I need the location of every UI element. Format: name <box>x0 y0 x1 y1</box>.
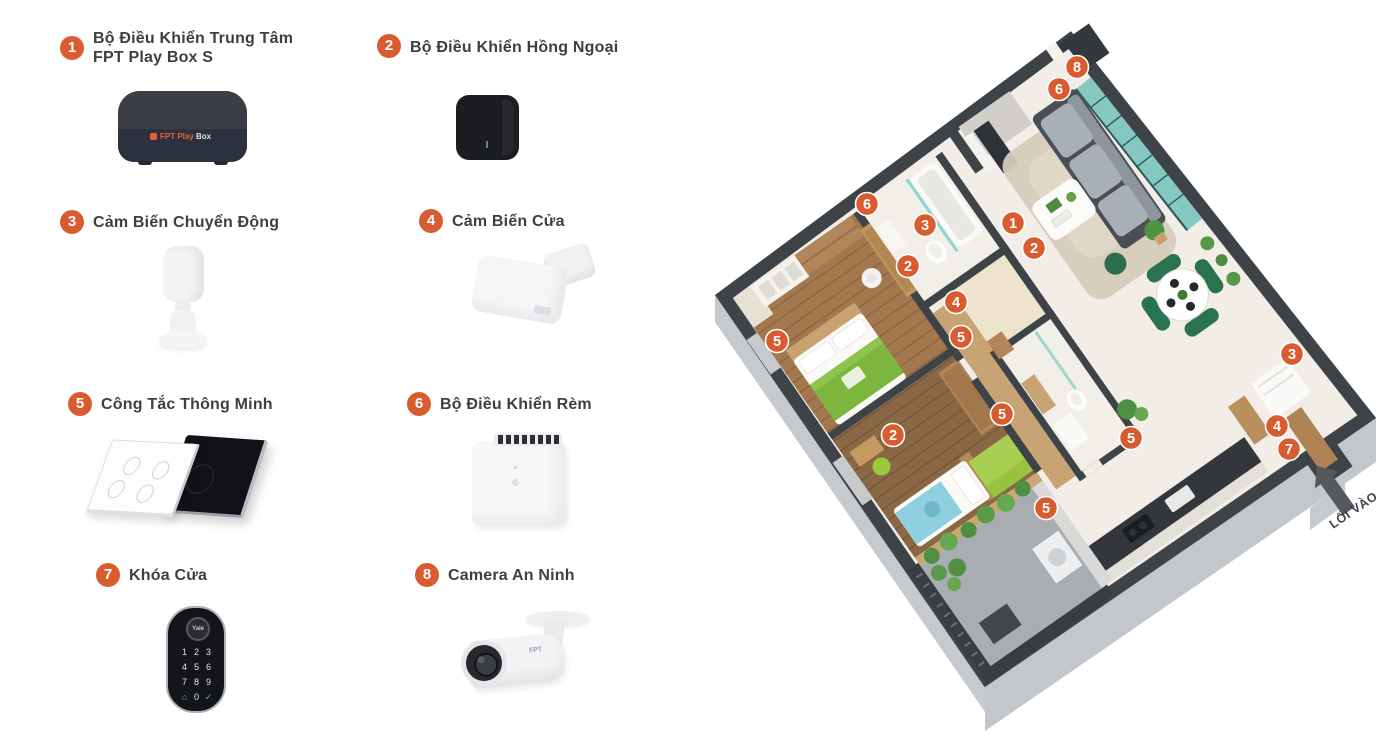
svg-text:6: 6 <box>863 197 871 213</box>
svg-text:5: 5 <box>1042 501 1050 517</box>
svg-text:2: 2 <box>904 259 912 275</box>
svg-text:2: 2 <box>1030 241 1038 257</box>
svg-text:5: 5 <box>957 330 965 346</box>
svg-text:4: 4 <box>952 295 960 311</box>
svg-text:3: 3 <box>921 218 929 234</box>
svg-text:7: 7 <box>1285 442 1293 458</box>
svg-text:5: 5 <box>998 407 1006 423</box>
svg-text:8: 8 <box>1073 60 1081 76</box>
svg-text:5: 5 <box>773 334 781 350</box>
svg-text:5: 5 <box>1127 431 1135 447</box>
svg-text:1: 1 <box>1009 216 1017 232</box>
svg-text:2: 2 <box>889 428 897 444</box>
svg-text:4: 4 <box>1273 419 1281 435</box>
svg-text:6: 6 <box>1055 82 1063 98</box>
svg-text:3: 3 <box>1288 347 1296 363</box>
